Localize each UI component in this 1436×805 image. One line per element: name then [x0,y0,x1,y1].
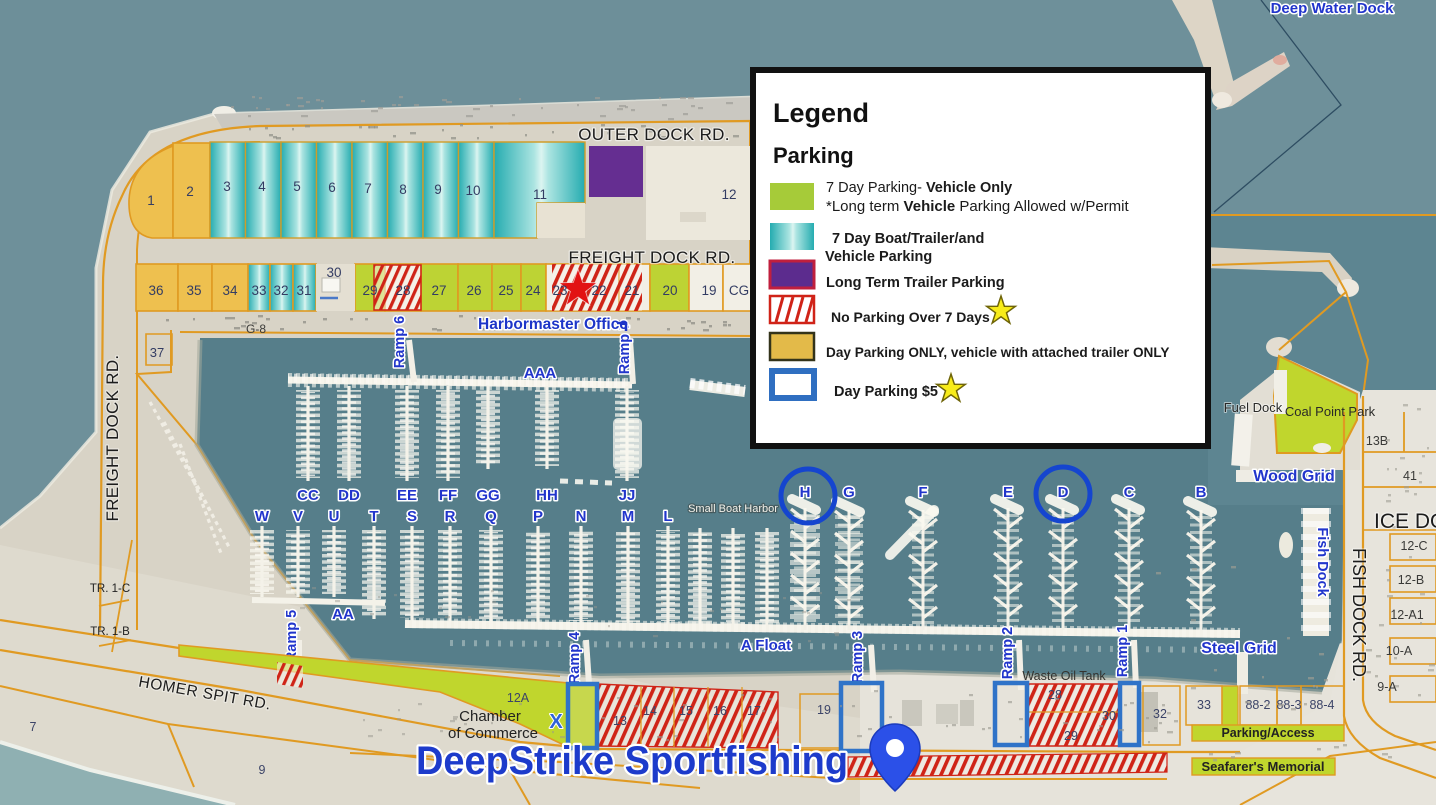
svg-text:35: 35 [186,283,201,298]
svg-text:H: H [800,484,811,501]
svg-text:Harbormaster Office: Harbormaster Office [478,316,628,333]
svg-text:20: 20 [662,283,677,298]
svg-text:Long Term Trailer Parking: Long Term Trailer Parking [826,275,1005,291]
svg-text:FF: FF [439,487,457,504]
svg-text:FISH DOCK RD.: FISH DOCK RD. [1349,548,1369,682]
svg-text:4: 4 [258,179,266,194]
svg-text:88-4: 88-4 [1309,698,1334,712]
svg-text:2: 2 [186,184,194,199]
svg-text:7 Day Parking- Vehicle Only: 7 Day Parking- Vehicle Only [826,180,1012,196]
svg-text:10-A: 10-A [1386,644,1413,658]
svg-text:13B: 13B [1366,434,1388,448]
svg-text:32: 32 [273,283,288,298]
svg-text:Ramp 1: Ramp 1 [1115,625,1131,677]
svg-text:X: X [549,711,563,733]
svg-text:Fish Dock: Fish Dock [1314,527,1330,597]
svg-text:T: T [369,508,378,525]
svg-text:OUTER DOCK RD.: OUTER DOCK RD. [578,125,730,144]
svg-text:33: 33 [251,283,266,298]
svg-text:Deep Water Dock: Deep Water Dock [1271,0,1394,17]
svg-text:30: 30 [1102,709,1116,723]
svg-text:FREIGHT DOCK RD.: FREIGHT DOCK RD. [569,248,736,267]
svg-text:ICE DOCK: ICE DOCK [1374,510,1436,533]
svg-text:19: 19 [701,283,716,298]
svg-text:Fuel Dock: Fuel Dock [1224,400,1283,415]
svg-text:D: D [1058,484,1069,501]
svg-text:P: P [533,508,543,525]
svg-text:Waste Oil Tank: Waste Oil Tank [1022,669,1106,683]
svg-text:Steel Grid: Steel Grid [1201,640,1277,657]
svg-text:FREIGHT DOCK RD.: FREIGHT DOCK RD. [103,355,122,522]
svg-text:TR. 1-C: TR. 1-C [90,583,130,595]
svg-text:5: 5 [293,179,301,194]
svg-text:Wood Grid: Wood Grid [1253,468,1334,485]
svg-text:9-A: 9-A [1377,680,1397,694]
svg-text:GG: GG [476,487,499,504]
svg-text:7 Day Boat/Trailer/and: 7 Day Boat/Trailer/and [832,231,984,247]
svg-text:28: 28 [395,283,410,298]
svg-text:7: 7 [364,181,372,196]
svg-text:Ramp 3: Ramp 3 [850,631,866,683]
svg-text:N: N [576,508,587,525]
svg-text:27: 27 [431,283,446,298]
svg-text:10: 10 [465,183,480,198]
svg-text:V: V [293,508,303,525]
svg-text:33: 33 [1197,698,1211,712]
svg-text:37: 37 [150,345,164,360]
svg-text:Ramp 5: Ramp 5 [284,610,300,662]
svg-text:12-A1: 12-A1 [1390,608,1423,622]
svg-text:Day Parking ONLY, vehicle with: Day Parking ONLY, vehicle with attached … [826,345,1170,360]
svg-text:R: R [445,508,456,525]
svg-text:E: E [1003,484,1013,501]
svg-text:25: 25 [498,283,513,298]
svg-text:8: 8 [399,182,407,197]
svg-text:3: 3 [223,179,231,194]
svg-text:Seafarer's Memorial: Seafarer's Memorial [1201,759,1324,774]
svg-text:9: 9 [259,763,266,777]
svg-text:M: M [622,508,635,525]
svg-text:11: 11 [533,187,547,202]
svg-text:1: 1 [147,193,155,208]
svg-text:TR. 1-B: TR. 1-B [90,626,130,638]
svg-text:DD: DD [338,487,360,504]
svg-text:A Float: A Float [741,637,791,654]
svg-text:CG: CG [729,283,749,298]
svg-text:12: 12 [721,187,736,202]
svg-text:AA: AA [332,606,354,623]
svg-text:22: 22 [591,283,606,298]
svg-text:Small Boat Harbor: Small Boat Harbor [688,503,778,515]
svg-text:B: B [1196,484,1207,501]
svg-text:13: 13 [613,714,627,728]
svg-text:12A: 12A [507,691,530,705]
svg-text:Parking: Parking [773,143,854,168]
svg-text:16: 16 [713,704,727,718]
svg-text:EE: EE [397,487,417,504]
svg-text:26: 26 [466,283,481,298]
svg-text:19: 19 [817,703,831,717]
svg-text:G: G [843,484,855,501]
svg-text:29: 29 [1064,729,1078,743]
svg-text:14: 14 [643,704,657,718]
svg-text:32: 32 [1153,707,1167,721]
svg-text:Ramp 2: Ramp 2 [1000,627,1016,679]
svg-text:Ramp 4: Ramp 4 [567,632,583,684]
svg-text:21: 21 [624,283,639,298]
svg-text:17: 17 [747,704,761,718]
svg-text:31: 31 [296,283,311,298]
svg-text:U: U [329,508,340,525]
svg-text:36: 36 [148,283,163,298]
svg-text:23: 23 [552,283,567,298]
svg-text:Vehicle Parking: Vehicle Parking [825,249,932,265]
svg-text:29: 29 [362,283,377,298]
svg-text:Day Parking $5: Day Parking $5 [834,384,938,400]
svg-text:Parking/Access: Parking/Access [1221,726,1314,740]
svg-text:DeepStrike Sportfishing: DeepStrike Sportfishing [416,739,848,783]
svg-text:F: F [918,484,927,501]
svg-text:*Long term Vehicle Parking All: *Long term Vehicle Parking Allowed w/Per… [826,198,1129,215]
svg-text:12-B: 12-B [1398,573,1424,587]
svg-text:JJ: JJ [619,487,636,504]
svg-text:S: S [407,508,417,525]
svg-text:C: C [1124,484,1135,501]
svg-text:No Parking Over 7 Days: No Parking Over 7 Days [831,309,990,325]
svg-text:CC: CC [297,487,319,504]
svg-text:30: 30 [326,265,341,280]
svg-text:Legend: Legend [773,98,869,128]
svg-text:L: L [663,508,672,525]
svg-text:9: 9 [434,182,442,197]
svg-text:Coal Point Park: Coal Point Park [1285,404,1376,419]
svg-text:41: 41 [1403,469,1417,483]
svg-text:34: 34 [222,283,238,298]
svg-text:Ramp 6: Ramp 6 [392,316,408,368]
svg-text:W: W [255,508,270,525]
svg-text:7: 7 [30,720,37,734]
svg-text:12-C: 12-C [1400,539,1427,553]
svg-text:Q: Q [485,508,497,525]
svg-text:6: 6 [328,180,336,195]
svg-text:AAA: AAA [524,365,557,382]
svg-text:HH: HH [536,487,558,504]
svg-text:Chamber: Chamber [459,708,521,725]
svg-text:24: 24 [525,283,541,298]
